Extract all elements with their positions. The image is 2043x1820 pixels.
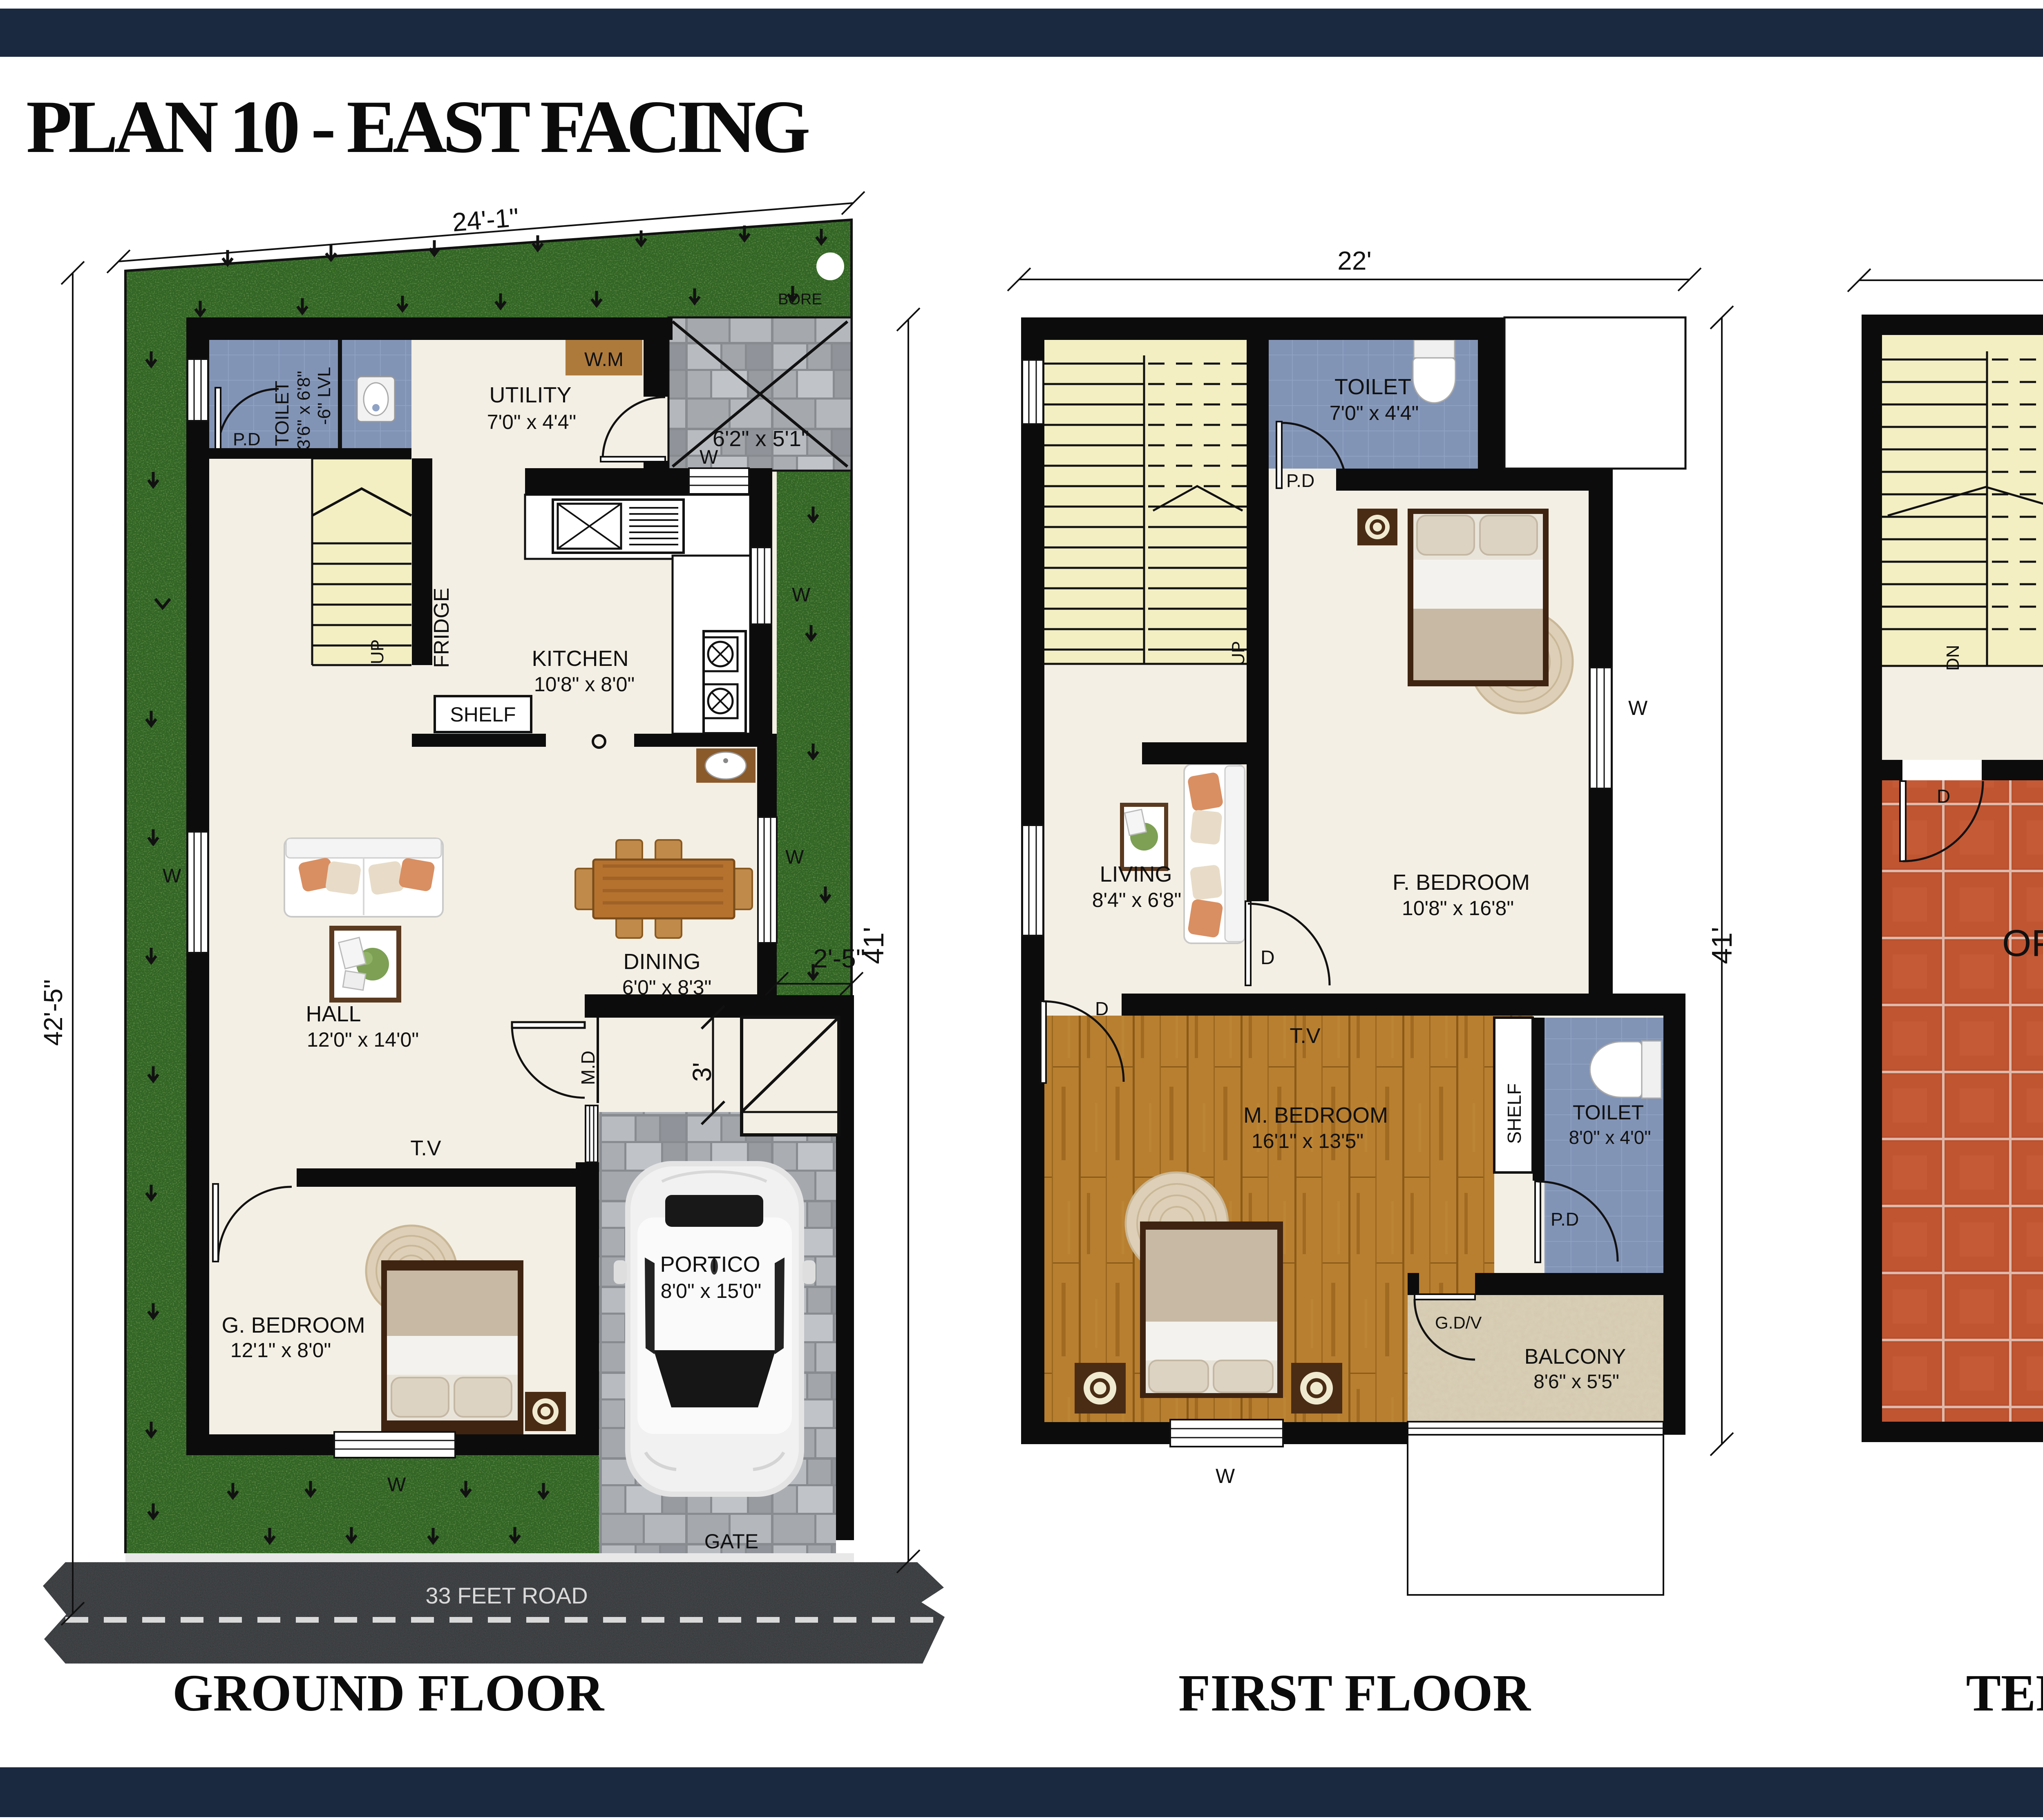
- svg-text:TOILET: TOILET: [1334, 375, 1411, 399]
- svg-text:P.D: P.D: [1551, 1209, 1579, 1230]
- svg-text:G.D/V: G.D/V: [1435, 1313, 1482, 1332]
- svg-text:F. BEDROOM: F. BEDROOM: [1393, 870, 1530, 895]
- svg-text:SHELF: SHELF: [1504, 1083, 1525, 1144]
- svg-text:8'6" x 5'5": 8'6" x 5'5": [1533, 1371, 1619, 1393]
- svg-text:W: W: [163, 865, 181, 887]
- svg-text:D: D: [1261, 947, 1275, 969]
- svg-text:P.D: P.D: [1286, 470, 1314, 491]
- svg-text:8'4" x 6'8": 8'4" x 6'8": [1092, 889, 1182, 911]
- svg-text:2'-5": 2'-5": [813, 944, 865, 973]
- svg-text:DINING: DINING: [624, 949, 701, 974]
- svg-text:BORE: BORE: [778, 291, 822, 308]
- svg-text:M.D: M.D: [577, 1051, 599, 1085]
- svg-text:8'0" x 4'0": 8'0" x 4'0": [1569, 1127, 1651, 1148]
- svg-text:7'0" x 4'4": 7'0" x 4'4": [1330, 402, 1419, 424]
- svg-text:DN: DN: [1943, 645, 1963, 671]
- svg-text:W: W: [387, 1474, 406, 1496]
- svg-text:10'8" x 8'0": 10'8" x 8'0": [534, 673, 635, 696]
- svg-text:3': 3': [687, 1062, 717, 1082]
- svg-text:24'-1": 24'-1": [451, 203, 520, 237]
- svg-text:KITCHEN: KITCHEN: [532, 646, 628, 671]
- svg-text:W: W: [700, 447, 718, 468]
- svg-text:W: W: [1628, 697, 1648, 719]
- svg-text:P.D: P.D: [233, 429, 261, 449]
- svg-text:FIRST FLOOR: FIRST FLOOR: [1178, 1664, 1531, 1722]
- svg-text:BALCONY: BALCONY: [1524, 1345, 1626, 1369]
- svg-text:8'0" x 15'0": 8'0" x 15'0": [661, 1280, 761, 1302]
- svg-text:41': 41': [1706, 927, 1738, 964]
- svg-text:UP: UP: [367, 639, 387, 664]
- svg-text:22': 22': [1337, 246, 1371, 275]
- svg-text:UP: UP: [1228, 641, 1248, 666]
- svg-text:T.V: T.V: [1290, 1024, 1320, 1048]
- svg-text:12'1" x 8'0": 12'1" x 8'0": [230, 1339, 331, 1362]
- svg-text:T.V: T.V: [410, 1137, 441, 1160]
- svg-text:10'8" x 16'8": 10'8" x 16'8": [1402, 897, 1514, 920]
- svg-text:LIVING: LIVING: [1100, 862, 1172, 887]
- svg-text:W: W: [1216, 1465, 1235, 1487]
- svg-text:FRIDGE: FRIDGE: [430, 588, 454, 668]
- svg-text:TOILET: TOILET: [1573, 1101, 1644, 1124]
- svg-text:OPEN TERRACE: OPEN TERRACE: [2002, 922, 2043, 964]
- svg-text:M. BEDROOM: M. BEDROOM: [1243, 1103, 1388, 1128]
- svg-text:PORTICO: PORTICO: [660, 1252, 760, 1277]
- svg-text:GROUND FLOOR: GROUND FLOOR: [172, 1664, 605, 1722]
- svg-text:-6" LVL: -6" LVL: [314, 367, 334, 425]
- svg-text:D: D: [1095, 998, 1109, 1019]
- svg-text:TERRACE FLOOR: TERRACE FLOOR: [1966, 1664, 2043, 1722]
- svg-text:3'6" x 6'8": 3'6" x 6'8": [294, 371, 314, 449]
- svg-text:7'0" x 4'4": 7'0" x 4'4": [487, 411, 577, 433]
- svg-text:33 FEET ROAD: 33 FEET ROAD: [425, 1583, 588, 1608]
- svg-text:GATE: GATE: [704, 1530, 758, 1553]
- svg-text:W: W: [792, 584, 811, 606]
- svg-text:D: D: [1937, 786, 1950, 807]
- svg-text:W: W: [785, 846, 804, 868]
- svg-text:PLAN 10 - EAST FACING: PLAN 10 - EAST FACING: [26, 85, 809, 168]
- svg-text:16'1" x 13'5": 16'1" x 13'5": [1252, 1130, 1363, 1152]
- svg-text:W.M: W.M: [584, 349, 624, 371]
- svg-text:SHELF: SHELF: [450, 703, 516, 726]
- svg-text:UTILITY: UTILITY: [489, 383, 571, 407]
- svg-text:HALL: HALL: [306, 1002, 361, 1026]
- svg-text:TOILET: TOILET: [271, 381, 293, 446]
- svg-text:6'2" x 5'1": 6'2" x 5'1": [713, 427, 809, 451]
- svg-text:G. BEDROOM: G. BEDROOM: [221, 1313, 365, 1338]
- svg-text:42'-5": 42'-5": [38, 979, 68, 1046]
- svg-text:12'0" x 14'0": 12'0" x 14'0": [307, 1028, 419, 1051]
